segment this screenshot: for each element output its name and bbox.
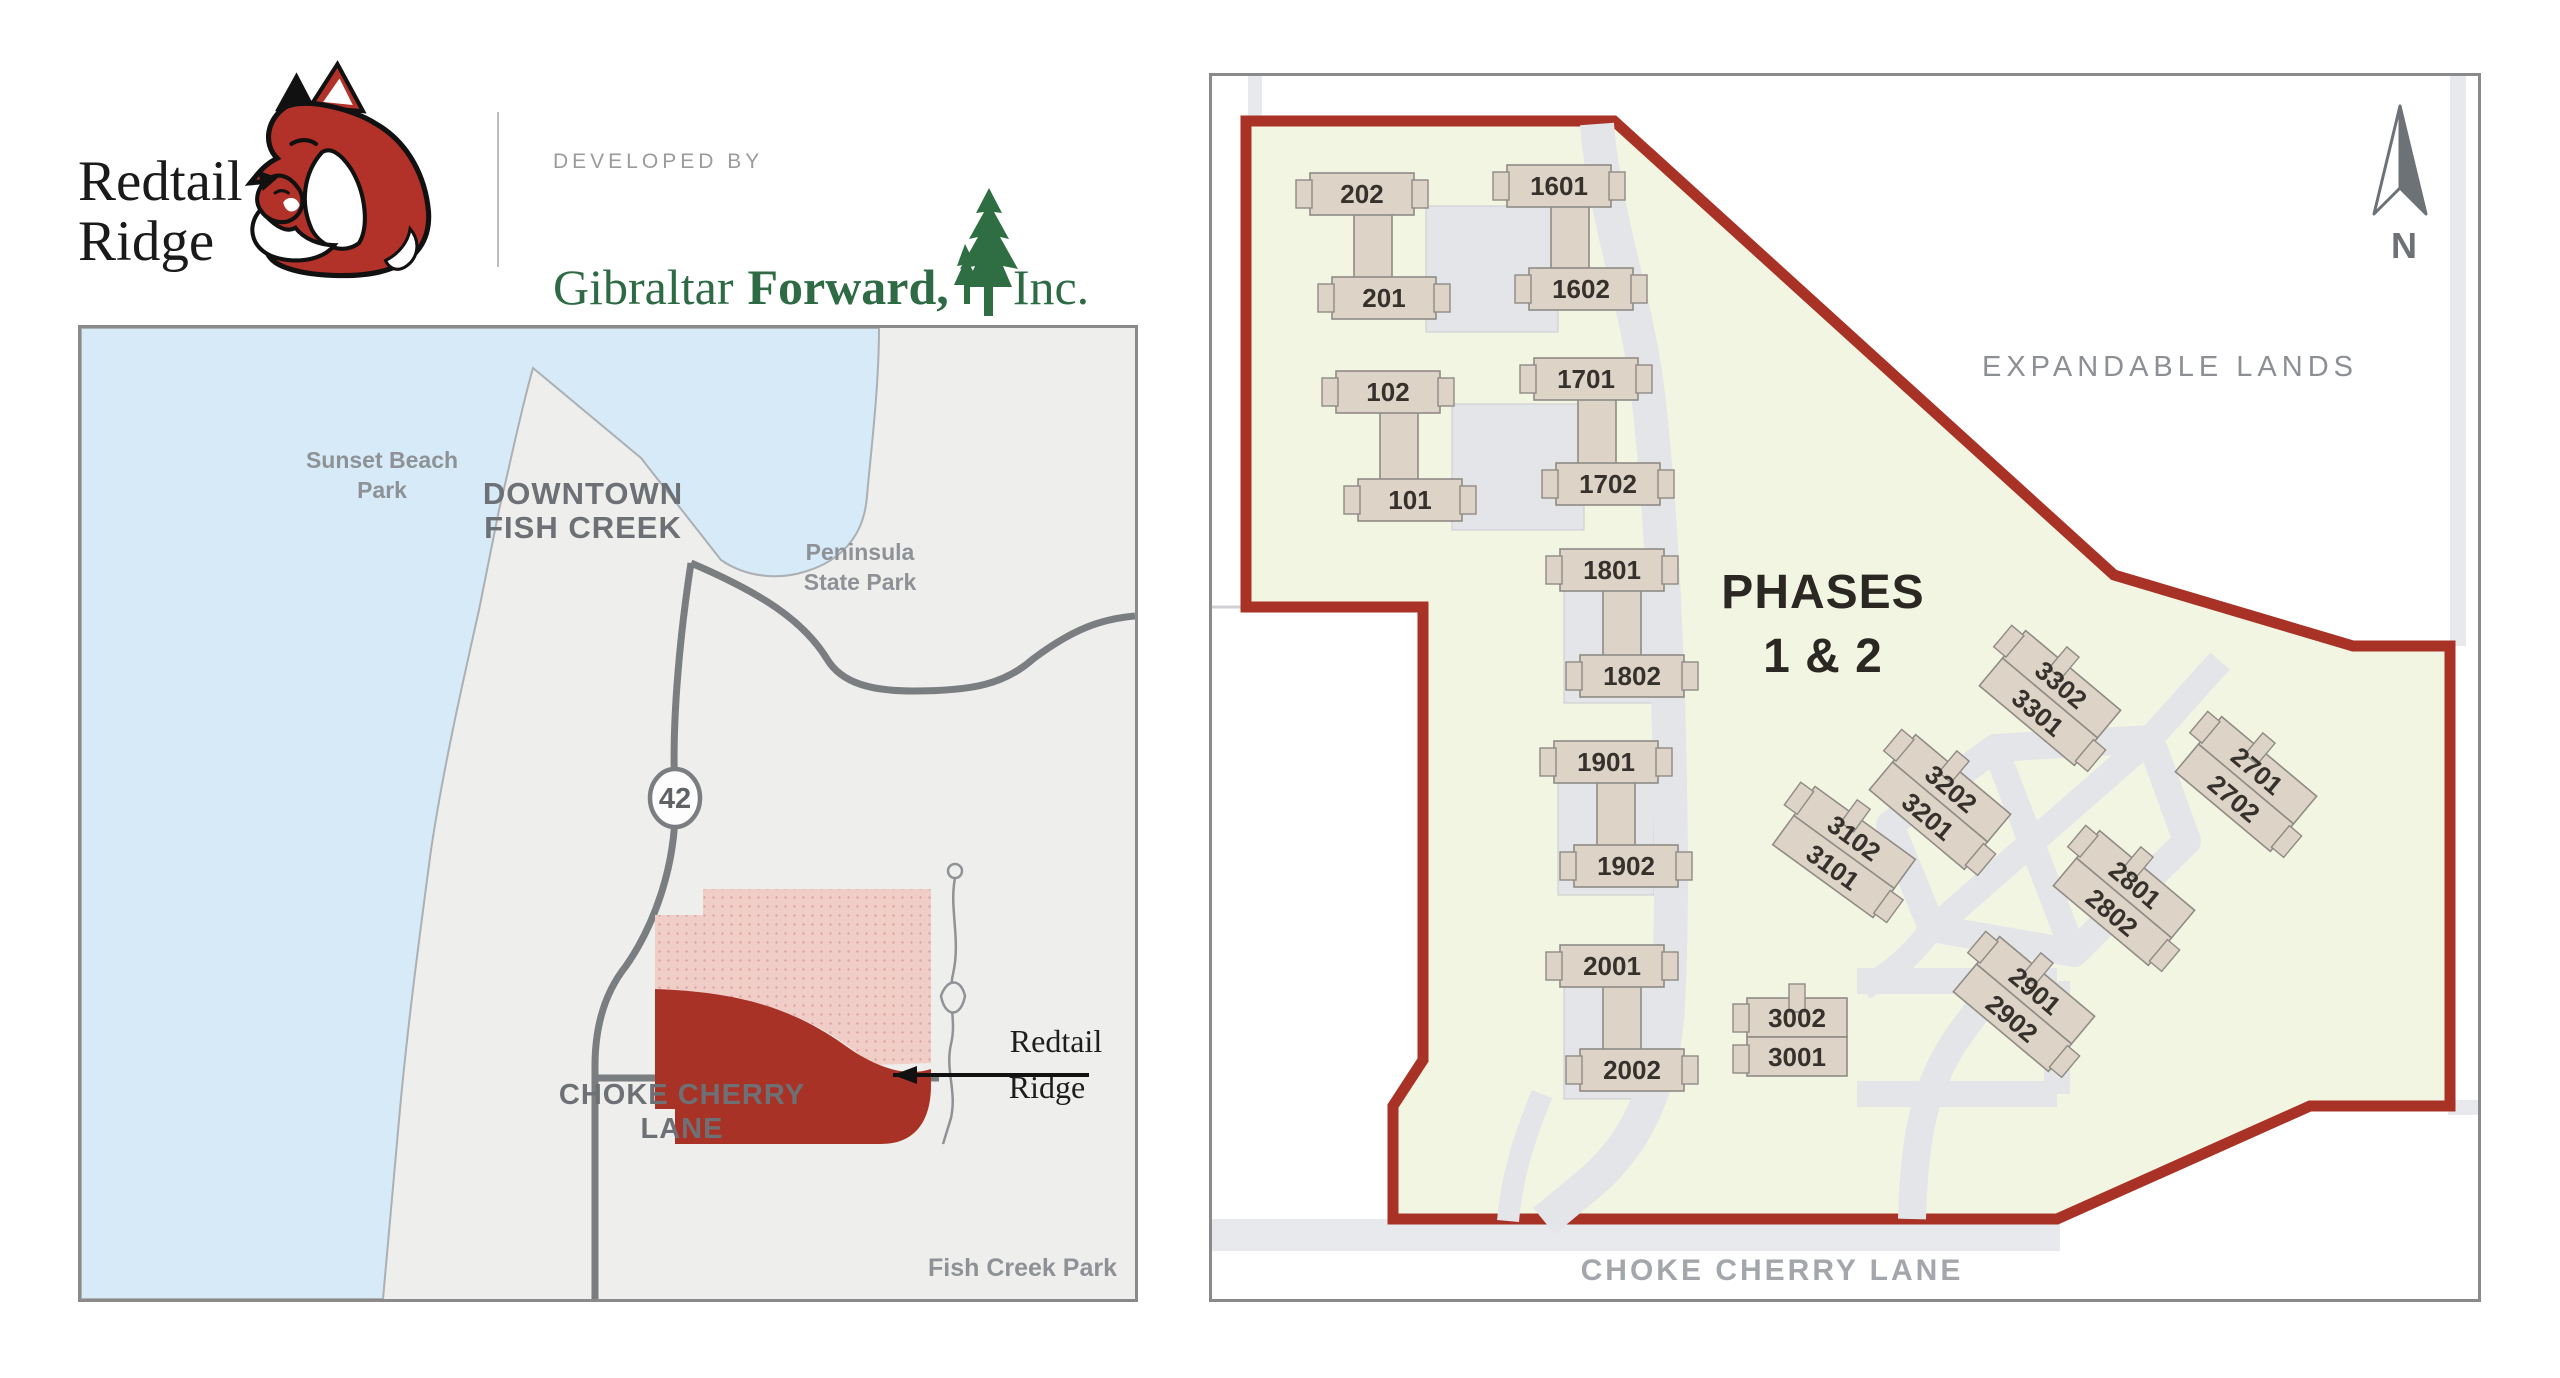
unit-label-3002: 3002 <box>1768 1003 1826 1033</box>
label-expandable-lands: EXPANDABLE LANDS <box>1982 351 2358 383</box>
label-choke-cherry-1: CHOKE CHERRY <box>559 1079 805 1111</box>
building-connector <box>1578 397 1616 466</box>
building-connector <box>1603 984 1641 1052</box>
label-phases-2: 1 & 2 <box>1763 630 1883 683</box>
unit-label-1702: 1702 <box>1579 469 1637 499</box>
building-garage-nub <box>1493 172 1509 200</box>
building-garage-nub <box>1631 275 1647 303</box>
unit-label-1901: 1901 <box>1577 747 1635 777</box>
building-garage-nub <box>1733 1045 1749 1073</box>
unit-label-1601: 1601 <box>1530 171 1588 201</box>
developer-name-suffix: Inc. <box>1013 258 1089 316</box>
building-connector <box>1380 410 1418 482</box>
label-downtown-1: DOWNTOWN <box>483 476 683 511</box>
developed-by-label: DEVELOPED BY <box>553 150 1089 174</box>
building-garage-nub <box>1438 378 1454 406</box>
logo-title: Redtail Ridge <box>78 152 243 272</box>
building-3002-3001[interactable]: 30023001 <box>1733 984 1847 1076</box>
unit-label-2001: 2001 <box>1583 951 1641 981</box>
building-garage-nub <box>1662 952 1678 980</box>
location-map: 42 Sunset Beach Park DOWNTOWN FISH CREEK… <box>81 328 1135 1299</box>
north-arrow-icon <box>2374 106 2426 214</box>
developer-name: Gibraltar Forward, Inc. <box>553 186 1089 316</box>
building-garage-nub <box>1662 556 1678 584</box>
label-street-choke-cherry: CHOKE CHERRY LANE <box>1581 1254 1964 1287</box>
building-garage-nub <box>1546 952 1562 980</box>
building-garage-nub <box>1733 1004 1749 1032</box>
building-garage-nub <box>1682 662 1698 690</box>
building-garage-nub <box>1682 1056 1698 1084</box>
fox-logo-icon <box>232 58 447 283</box>
building-connector <box>1354 212 1392 280</box>
label-choke-cherry-2: LANE <box>641 1113 724 1145</box>
developer-block: DEVELOPED BY Gibraltar Forward, Inc. <box>553 150 1089 316</box>
site-plan: 2022011021011601160217011702180118021901… <box>1212 76 2478 1299</box>
developer-name-bold: Forward, <box>747 258 948 316</box>
road-strip-east <box>2450 76 2466 646</box>
location-map-panel: 42 Sunset Beach Park DOWNTOWN FISH CREEK… <box>78 325 1138 1302</box>
unit-label-102: 102 <box>1366 377 1409 407</box>
label-peninsula-1: Peninsula <box>806 539 915 565</box>
building-garage-nub <box>1434 284 1450 312</box>
site-plan-panel: 2022011021011601160217011702180118021901… <box>1209 73 2481 1302</box>
developer-name-regular: Gibraltar <box>553 258 733 316</box>
label-sunset-beach-2: Park <box>357 477 407 503</box>
unit-label-101: 101 <box>1388 485 1431 515</box>
header-divider <box>497 112 499 267</box>
building-garage-nub <box>1676 852 1692 880</box>
building-garage-nub <box>1656 748 1672 776</box>
label-site-callout-1: Redtail <box>1010 1023 1103 1059</box>
building-connector <box>1551 204 1589 271</box>
label-downtown-2: FISH CREEK <box>484 510 682 545</box>
building-garage-nub <box>1344 486 1360 514</box>
building-garage-nub <box>1318 284 1334 312</box>
route-42-label: 42 <box>659 783 691 815</box>
logo-title-line1: Redtail <box>78 152 243 212</box>
unit-label-1701: 1701 <box>1557 364 1615 394</box>
unit-label-2002: 2002 <box>1603 1055 1661 1085</box>
building-garage-nub <box>1296 180 1312 208</box>
label-phases-1: PHASES <box>1721 566 1924 619</box>
building-garage-nub <box>1636 365 1652 393</box>
unit-label-201: 201 <box>1362 283 1405 313</box>
building-garage-nub <box>1542 470 1558 498</box>
page: Redtail Ridge DEVELOPED BY Gibraltar For… <box>0 0 2560 1378</box>
unit-label-1602: 1602 <box>1552 274 1610 304</box>
building-garage-nub <box>1560 852 1576 880</box>
building-garage-nub <box>1566 662 1582 690</box>
building-connector <box>1597 780 1635 848</box>
map-creek-pond <box>941 983 965 1013</box>
building-garage-nub <box>1460 486 1476 514</box>
building-garage-nub <box>1412 180 1428 208</box>
building-garage-nub <box>1520 365 1536 393</box>
label-peninsula-2: State Park <box>804 569 917 595</box>
label-sunset-beach-1: Sunset Beach <box>306 447 458 473</box>
building-garage-nub <box>1546 556 1562 584</box>
logo-title-line2: Ridge <box>78 212 243 272</box>
unit-label-3001: 3001 <box>1768 1042 1826 1072</box>
building-garage-nub <box>1609 172 1625 200</box>
map-creek-spring <box>948 864 962 878</box>
road-stub-north <box>1248 76 1262 122</box>
building-garage-nub <box>1566 1056 1582 1084</box>
unit-label-1902: 1902 <box>1597 851 1655 881</box>
building-garage-nub <box>1540 748 1556 776</box>
building-garage-nub <box>1322 378 1338 406</box>
label-fish-creek-park: Fish Creek Park <box>928 1254 1117 1282</box>
unit-label-202: 202 <box>1340 179 1383 209</box>
building-garage-nub <box>1515 275 1531 303</box>
building-garage-nub <box>1658 470 1674 498</box>
north-arrow-label: N <box>2391 225 2417 266</box>
unit-label-1802: 1802 <box>1603 661 1661 691</box>
pine-tree-icon <box>951 186 1021 318</box>
building-connector <box>1603 588 1641 658</box>
unit-label-1801: 1801 <box>1583 555 1641 585</box>
